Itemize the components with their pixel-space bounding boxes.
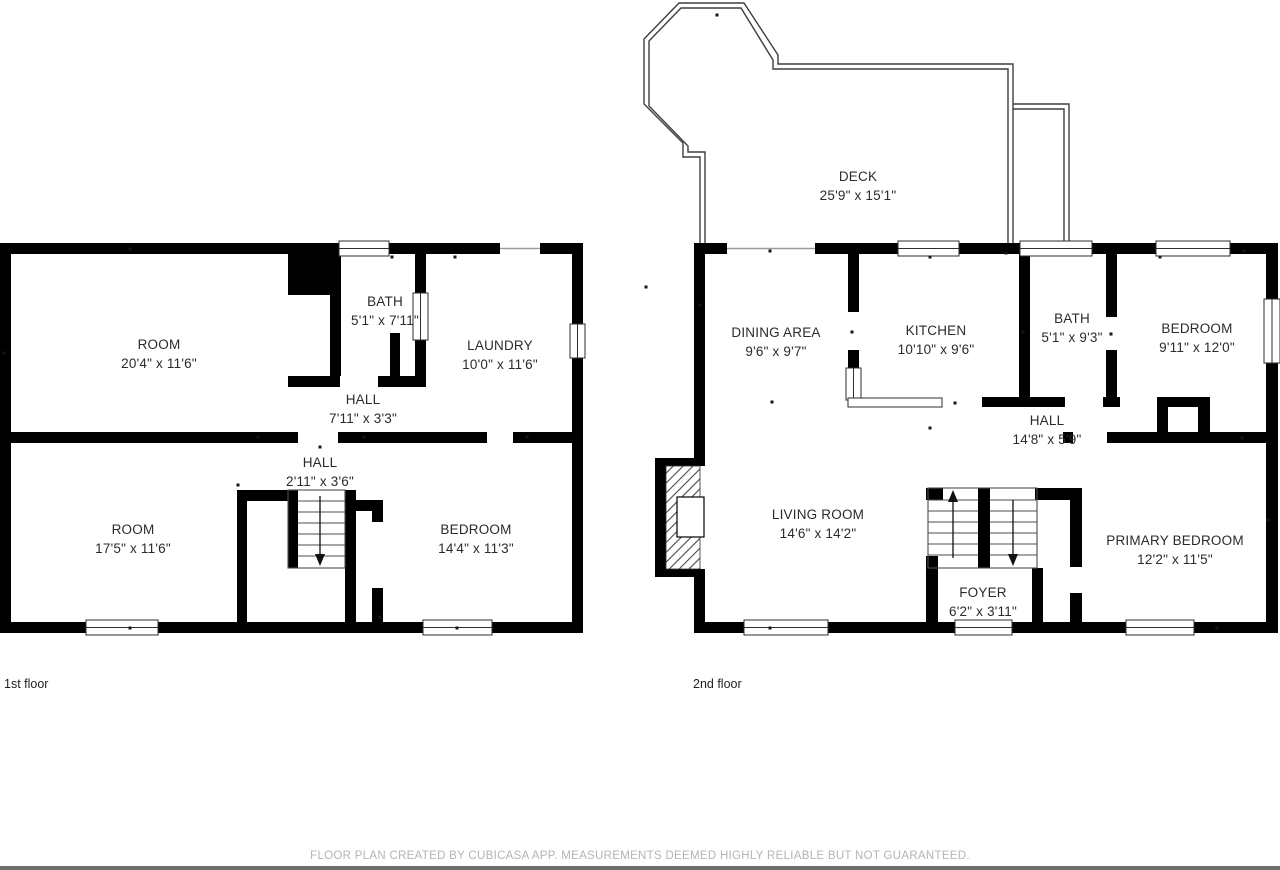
room-name: FOYER [949,585,1017,600]
disclaimer-text: FLOOR PLAN CREATED BY CUBICASA APP. MEAS… [0,850,1280,862]
room-label-bath-1: BATH 5'1" x 7'11" [351,294,419,328]
room-dims: 2'11" x 3'6" [286,474,354,489]
window-icon [744,620,828,635]
room-dims: 14'6" x 14'2" [772,526,864,541]
second-floor-walls [694,243,1278,633]
window-icon [339,241,389,256]
room-dims: 25'9" x 15'1" [820,188,897,203]
room-name: DECK [820,169,897,184]
window-icon [1020,241,1092,256]
room-name: BATH [1041,311,1102,326]
room-name: ROOM [121,337,197,352]
room-label-bath-2: BATH 5'1" x 9'3" [1041,311,1102,345]
room-dims: 17'5" x 11'6" [95,541,171,556]
room-label-deck: DECK 25'9" x 15'1" [820,169,897,203]
room-label-room-upper: ROOM 20'4" x 11'6" [121,337,197,371]
room-name: HALL [329,392,397,407]
room-dims: 14'8" x 5'9" [1013,432,1082,447]
window-icon [570,324,585,358]
room-label-hall-lower: HALL 2'11" x 3'6" [286,455,354,489]
kitchen-counter [848,398,942,407]
window-icon [1126,620,1194,635]
room-name: LIVING ROOM [772,507,864,522]
bottom-edge-strip [0,866,1280,870]
room-name: LAUNDRY [462,338,538,353]
room-dims: 9'11" x 12'0" [1159,340,1235,355]
room-dims: 5'1" x 9'3" [1041,330,1102,345]
window-icon [1264,299,1280,363]
room-label-dining-area: DINING AREA 9'6" x 9'7" [731,325,820,359]
room-dims: 10'10" x 9'6" [898,342,975,357]
room-dims: 6'2" x 3'11" [949,604,1017,619]
room-name: BEDROOM [438,522,514,537]
room-label-hall-2: HALL 14'8" x 5'9" [1013,413,1082,447]
room-name: HALL [286,455,354,470]
room-label-hall-upper: HALL 7'11" x 3'3" [329,392,397,426]
first-floor-walls [0,243,583,633]
door-opening-icon [846,368,861,400]
room-label-laundry: LAUNDRY 10'0" x 11'6" [462,338,538,372]
room-label-bedroom-2: BEDROOM 9'11" x 12'0" [1159,321,1235,355]
chimney-block [288,250,335,295]
room-dims: 5'1" x 7'11" [351,313,419,328]
fireplace-icon [655,458,705,577]
floor-plan-drawing [0,0,1280,870]
deck-railing [644,3,1069,243]
first-floor-caption: 1st floor [4,677,48,691]
room-name: BATH [351,294,419,309]
room-name: BEDROOM [1159,321,1235,336]
room-name: ROOM [95,522,171,537]
room-dims: 7'11" x 3'3" [329,411,397,426]
window-icon [86,620,158,635]
room-label-room-lower: ROOM 17'5" x 11'6" [95,522,171,556]
room-label-bedroom-1: BEDROOM 14'4" x 11'3" [438,522,514,556]
room-label-primary-bedroom: PRIMARY BEDROOM 12'2" x 11'5" [1106,533,1244,567]
window-icon [898,241,959,256]
second-floor-caption: 2nd floor [693,677,742,691]
room-name: DINING AREA [731,325,820,340]
room-name: PRIMARY BEDROOM [1106,533,1244,548]
room-dims: 14'4" x 11'3" [438,541,514,556]
room-dims: 10'0" x 11'6" [462,357,538,372]
room-label-living-room: LIVING ROOM 14'6" x 14'2" [772,507,864,541]
room-dims: 9'6" x 9'7" [731,344,820,359]
room-name: HALL [1013,413,1082,428]
room-name: KITCHEN [898,323,975,338]
room-dims: 12'2" x 11'5" [1106,552,1244,567]
room-label-foyer: FOYER 6'2" x 3'11" [949,585,1017,619]
window-icon [1156,241,1230,256]
room-label-kitchen: KITCHEN 10'10" x 9'6" [898,323,975,357]
entry-door-icon [955,620,1012,635]
room-dims: 20'4" x 11'6" [121,356,197,371]
floor-plan-page: { "footer": { "disclaimer": "FLOOR PLAN … [0,0,1280,870]
